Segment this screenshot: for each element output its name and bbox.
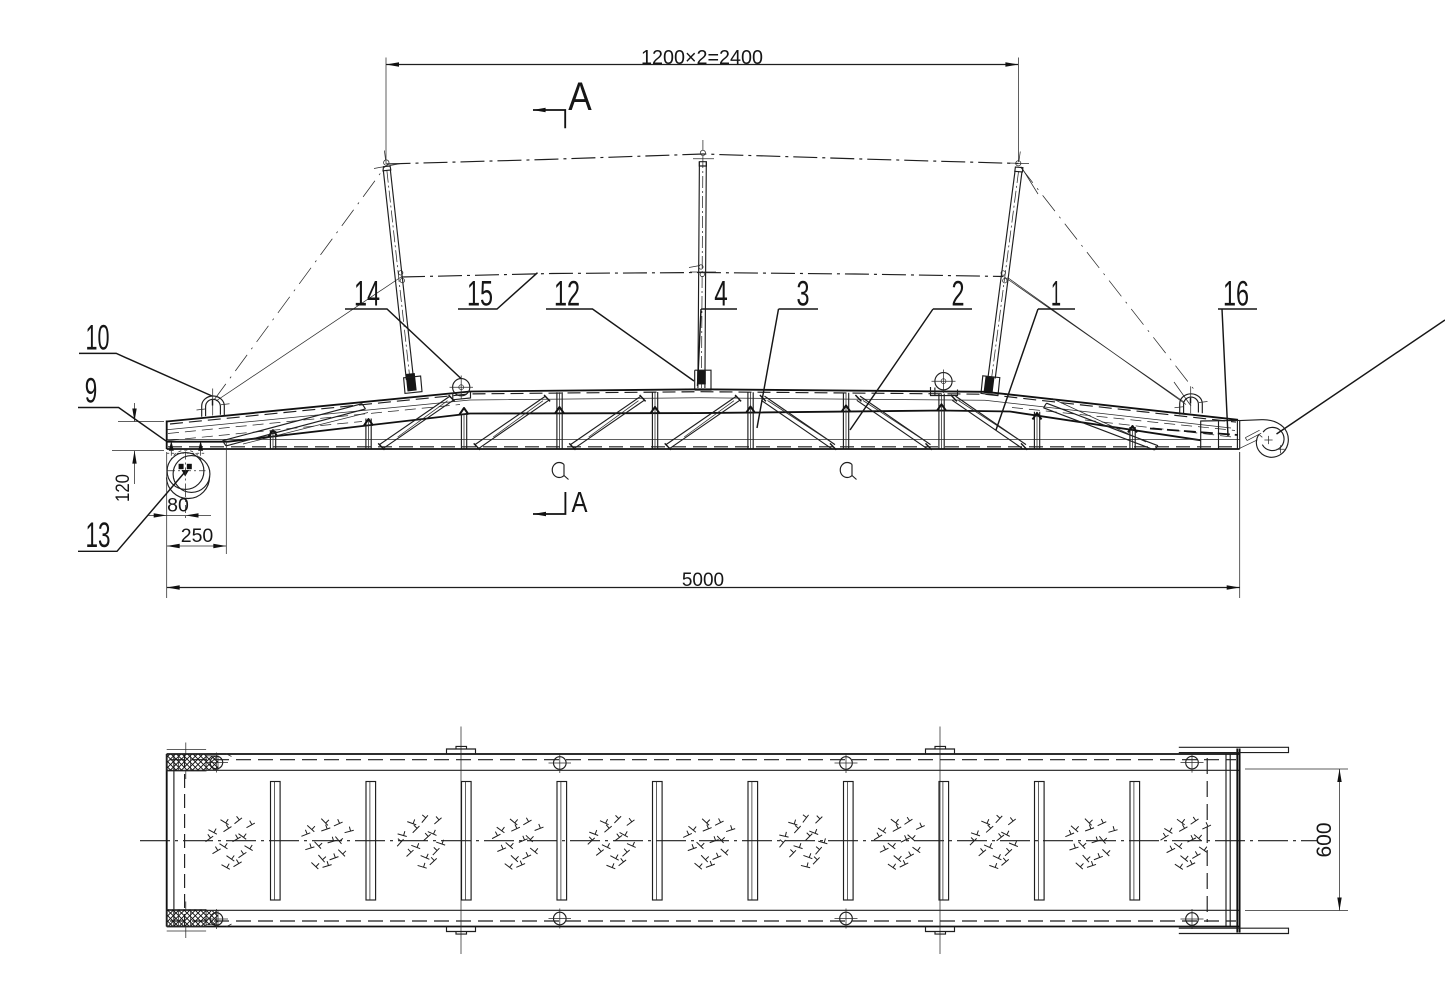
svg-text:15: 15: [467, 275, 493, 314]
svg-text:3: 3: [797, 275, 810, 314]
svg-text:A: A: [568, 75, 592, 119]
svg-text:10: 10: [86, 319, 110, 358]
svg-text:600: 600: [1313, 822, 1336, 857]
svg-text:A: A: [572, 487, 589, 519]
svg-text:120: 120: [112, 474, 134, 502]
svg-text:2: 2: [952, 275, 965, 314]
svg-text:250: 250: [181, 525, 214, 547]
svg-text:9: 9: [85, 372, 98, 411]
svg-text:1200×2=2400: 1200×2=2400: [641, 46, 763, 69]
svg-text:14: 14: [354, 275, 380, 314]
svg-text:80: 80: [167, 495, 189, 517]
svg-text:4: 4: [714, 275, 728, 314]
svg-text:1: 1: [1051, 275, 1061, 314]
svg-text:13: 13: [86, 516, 111, 555]
svg-text:12: 12: [554, 275, 580, 314]
svg-text:16: 16: [1223, 275, 1249, 314]
svg-text:5000: 5000: [682, 570, 724, 591]
